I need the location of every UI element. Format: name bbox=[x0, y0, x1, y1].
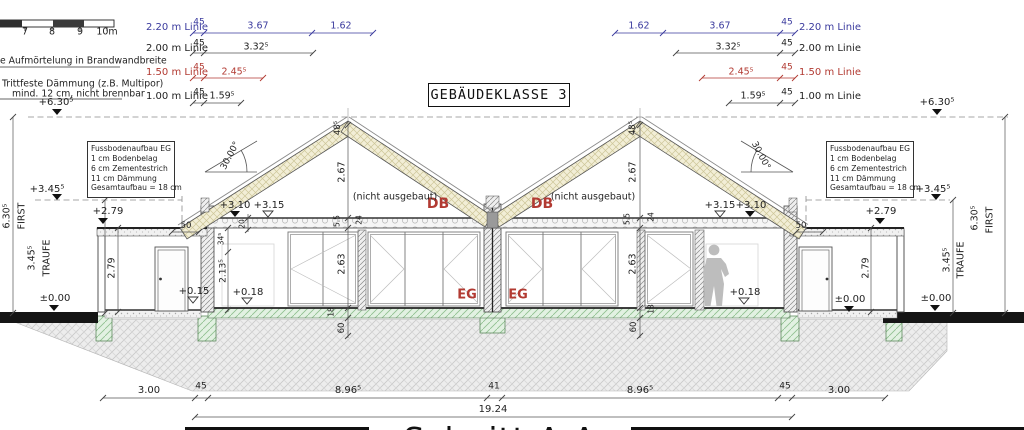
floor-note-line: Gesamtaufbau = 18 cm bbox=[91, 183, 171, 193]
floor-note-line: 6 cm Zementestrich bbox=[91, 164, 171, 174]
floor-buildup-note-right: Fussbodenaufbau EG1 cm Bodenbelag6 cm Ze… bbox=[826, 141, 914, 198]
floor-note-line: 11 cm Dämmung bbox=[91, 174, 171, 184]
building-class-title: GEBÄUDEKLASSE 3 bbox=[428, 83, 570, 107]
section-geometry bbox=[0, 0, 1024, 430]
floor-note-line: Gesamtaufbau = 18 cm bbox=[830, 183, 910, 193]
floor-buildup-note-left: Fussbodenaufbau EG1 cm Bodenbelag6 cm Ze… bbox=[87, 141, 175, 198]
ground-line-right bbox=[883, 312, 1024, 323]
title-block-edge-right bbox=[631, 427, 1024, 430]
floor-note-line: 1 cm Bodenbelag bbox=[91, 154, 171, 164]
person-silhouette bbox=[703, 245, 729, 306]
section-title: Schnitt A-A bbox=[360, 420, 640, 430]
title-block-edge-left bbox=[185, 427, 369, 430]
ground-line-left bbox=[0, 312, 98, 323]
architectural-section-drawing: 78910me Aufmörtelung in BrandwandbreiteT… bbox=[0, 0, 1024, 430]
soil-hatch bbox=[8, 320, 947, 392]
floor-note-line: Fussbodenaufbau EG bbox=[91, 144, 171, 154]
floor-note-line: 1 cm Bodenbelag bbox=[830, 154, 910, 164]
valley-connector bbox=[487, 212, 498, 228]
floor-note-line: 11 cm Dämmung bbox=[830, 174, 910, 184]
floor-note-line: 6 cm Zementestrich bbox=[830, 164, 910, 174]
scale-bar bbox=[0, 20, 114, 31]
note-leader-lines bbox=[0, 67, 122, 99]
floor-note-line: Fussbodenaufbau EG bbox=[830, 144, 910, 154]
